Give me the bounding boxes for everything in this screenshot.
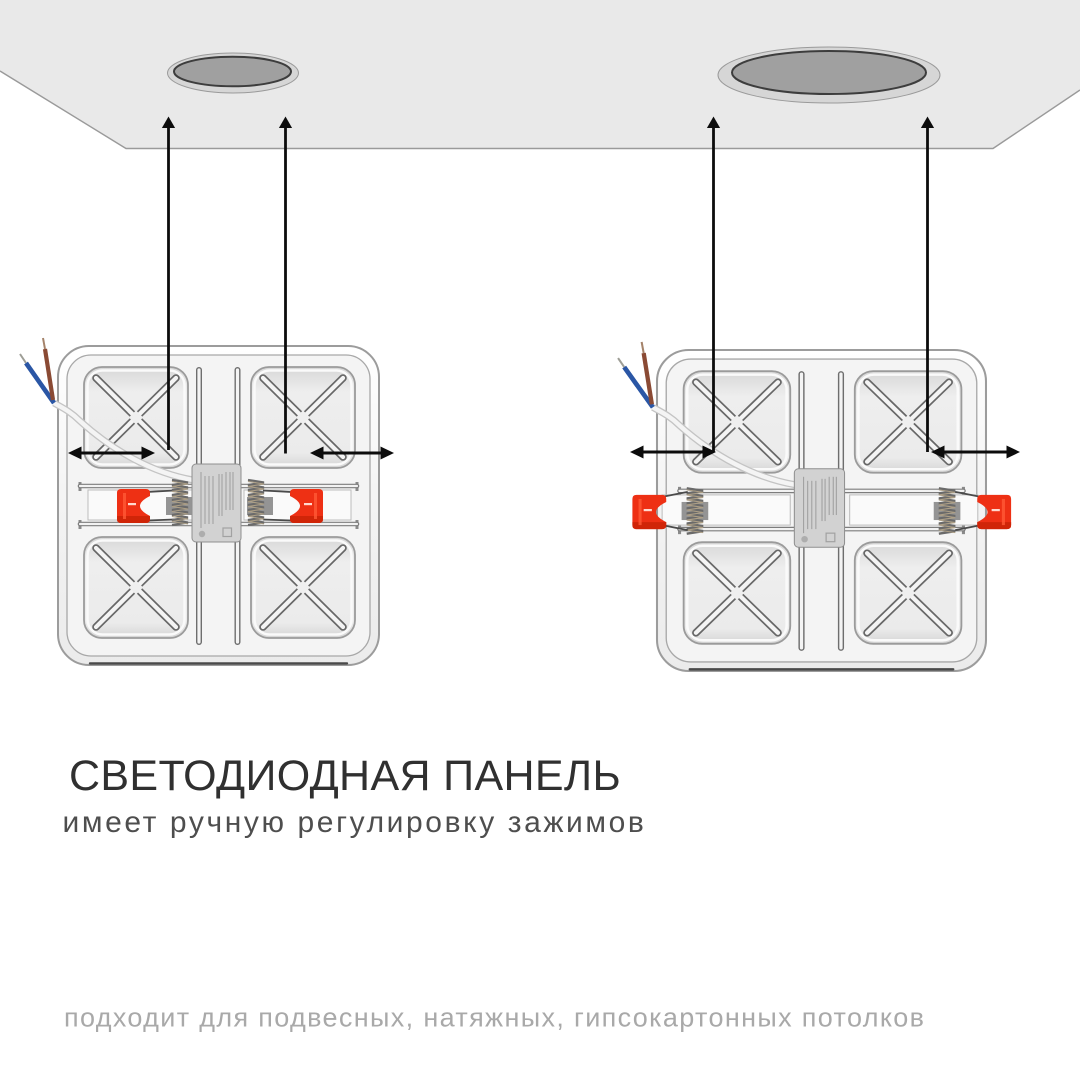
svg-text:имеет ручную регулировку зажим: имеет ручную регулировку зажимов xyxy=(63,806,647,839)
svg-text:СВЕТОДИОДНАЯ ПАНЕЛЬ: СВЕТОДИОДНАЯ ПАНЕЛЬ xyxy=(69,752,621,800)
svg-text:подходит для подвесных, натяжн: подходит для подвесных, натяжных, гипсок… xyxy=(64,1003,925,1033)
